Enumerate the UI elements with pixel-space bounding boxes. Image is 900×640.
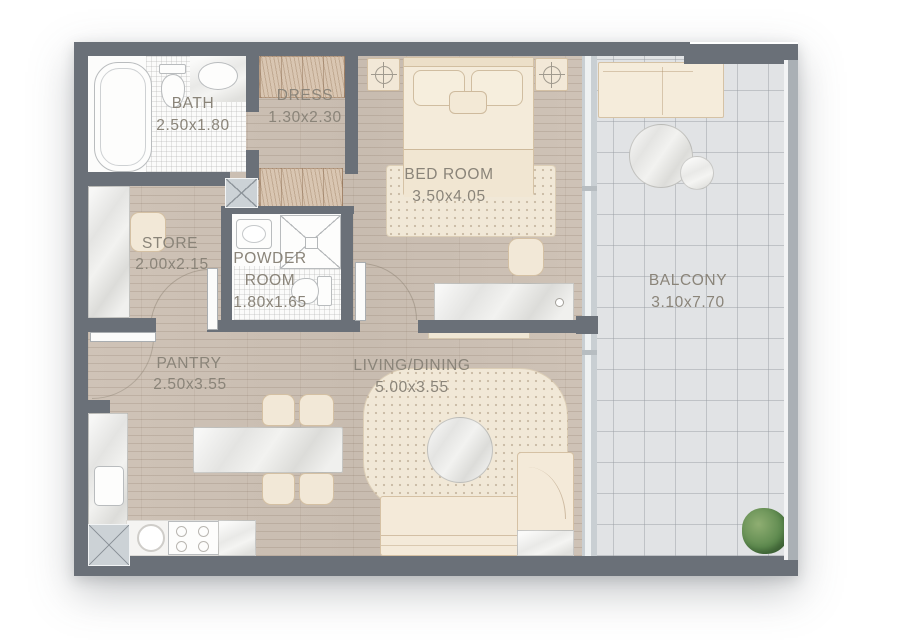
floor-plan-canvas: BATH 2.50x1.80 DRESS 1.30x2.30 BED ROOM … — [0, 0, 900, 640]
wall-store-south — [88, 318, 156, 332]
pantry-sink — [94, 466, 124, 506]
powder-sink — [236, 219, 272, 249]
room-label-living: LIVING/DINING — [353, 357, 470, 375]
bench-back-line — [603, 71, 693, 72]
wall-left — [74, 42, 88, 576]
room-size-balcony: 3.10x7.70 — [651, 294, 725, 312]
dining-chair — [262, 473, 295, 505]
lamp-icon — [539, 62, 565, 88]
room-label-balcony: BALCONY — [649, 272, 727, 290]
bathtub — [94, 62, 152, 172]
dining-table — [193, 427, 343, 473]
wall-powder-west — [221, 206, 232, 332]
room-label-powder-line1: POWDER — [233, 250, 306, 268]
side-table — [517, 530, 574, 556]
dress-wardrobe-bottom — [259, 168, 343, 208]
bedroom-chair — [508, 238, 544, 276]
room-size-bedroom: 3.50x4.05 — [412, 188, 486, 206]
room-size-dress: 1.30x2.30 — [268, 109, 342, 127]
room-label-pantry: PANTRY — [156, 355, 221, 373]
bench-divider — [662, 67, 663, 115]
lamp-icon — [371, 62, 397, 88]
room-size-living: 5.00x3.55 — [375, 379, 449, 397]
shaft-duct — [225, 178, 258, 208]
room-label-store: STORE — [142, 235, 198, 253]
balcony-plant — [742, 508, 789, 554]
bedroom-door-leaf — [355, 262, 366, 321]
entry-door-leaf — [90, 332, 156, 342]
wall-bedroom-south — [418, 320, 580, 333]
coffee-table — [427, 417, 493, 483]
wall-powder-south — [207, 320, 360, 332]
glass-wall — [582, 56, 597, 556]
balcony-railing — [784, 60, 798, 560]
chaise-decor-line — [528, 467, 566, 519]
sofa — [380, 496, 521, 556]
room-size-powder: 1.80x1.65 — [233, 294, 307, 312]
bed-headboard — [404, 58, 533, 67]
nightstand-right — [535, 58, 568, 91]
room-size-pantry: 2.50x3.55 — [153, 376, 227, 394]
chaise-lounge — [517, 452, 574, 534]
wall-bath-dress-upper — [246, 56, 259, 112]
dining-chair — [262, 394, 295, 426]
glass-mullion — [582, 186, 597, 191]
bed-pillow-center — [449, 91, 487, 114]
wall-bath-south — [88, 172, 230, 186]
wall-glass-junction — [576, 316, 598, 334]
stove — [168, 521, 220, 555]
room-label-bath: BATH — [172, 95, 215, 113]
room-size-store: 2.00x2.15 — [135, 256, 209, 274]
wall-top-balcony — [684, 44, 798, 64]
powder-toilet-tank — [317, 276, 332, 306]
burner — [176, 541, 187, 552]
balcony-bench — [598, 62, 724, 118]
store-cabinet — [88, 186, 130, 318]
store-door-leaf — [207, 268, 218, 330]
wall-powder-east — [341, 206, 353, 332]
room-label-bedroom: BED ROOM — [404, 166, 493, 184]
shaft-duct — [88, 524, 130, 566]
burner — [176, 526, 187, 537]
wall-pantry-stub — [88, 400, 110, 413]
glass-mullion — [582, 350, 597, 355]
bathtub-inner — [100, 68, 146, 166]
room-size-bath: 2.50x1.80 — [156, 117, 230, 135]
kitchen-counter-marble-end — [218, 520, 256, 556]
room-label-powder-line2: ROOM — [245, 272, 296, 290]
dining-chair — [299, 394, 334, 426]
wall-dress-bedroom — [345, 56, 358, 174]
powder-sink-basin — [242, 225, 266, 243]
bath-sink — [198, 62, 238, 90]
room-label-dress: DRESS — [277, 87, 333, 105]
balcony-table-small — [680, 156, 714, 190]
bath-toilet-tank — [159, 64, 186, 74]
kitchen-round-sink — [137, 524, 165, 552]
dining-chair — [299, 473, 334, 505]
console-handle — [555, 298, 564, 307]
burner — [198, 526, 209, 537]
sofa-seat-line — [381, 535, 520, 536]
wall-bottom — [74, 556, 798, 576]
sofa-back-line — [381, 545, 520, 546]
burner — [198, 541, 209, 552]
bedroom-console — [434, 283, 574, 322]
shower-drain — [305, 237, 318, 249]
wall-top — [74, 42, 690, 56]
wall-bath-dress-lower — [246, 150, 259, 180]
nightstand-left — [367, 58, 400, 91]
